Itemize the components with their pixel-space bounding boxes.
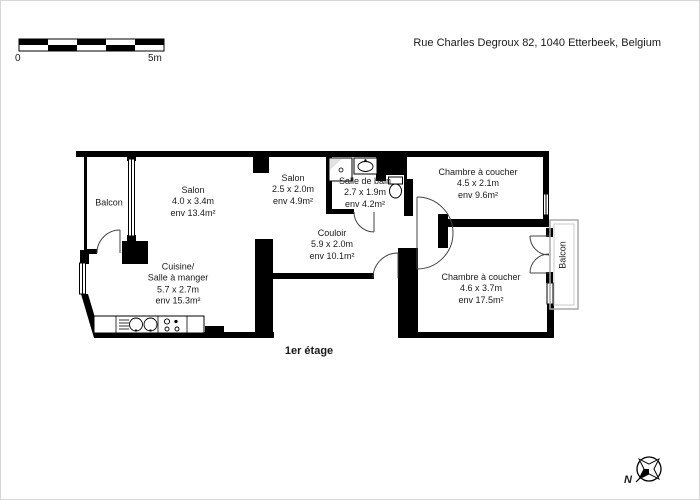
window-kitchen-left [80,263,86,294]
room-name: Salon [272,173,314,184]
room-label-salon-small: Salon 2.5 x 2.0m env 4.9m² [272,173,314,207]
compass-north-label: N [624,474,632,486]
wall-chamber-divider [448,219,549,227]
room-label-kitchen: Cuisine/ Salle à manger 5.7 x 2.7m env 1… [148,262,209,307]
room-dimensions: 5.7 x 2.7m [148,284,209,295]
room-name: Chambre à coucher [441,272,520,283]
room-name: Cuisine/ Salle à manger [148,262,209,285]
room-area: env 17.5m² [441,295,520,306]
room-area: env 4.9m² [272,196,314,207]
door-balcony-left [97,230,120,253]
wall-top [76,151,546,157]
room-area: env 13.4m² [170,208,215,219]
room-dimensions: 4.5 x 2.1m [438,178,517,189]
room-name: Balcon [557,241,568,269]
scale-bar-icon [19,39,164,51]
room-dimensions: 2.7 x 1.9m [339,187,391,198]
wall-balcony-left [84,151,87,252]
kitchen-counter [94,316,204,333]
room-label-bedroom-top: Chambre à coucher 4.5 x 2.1m env 9.6m² [438,167,517,201]
wall-center-stub [438,214,448,248]
scale-end-label: 5m [148,53,162,64]
room-name: Salle de bain [339,176,391,187]
door-french-top [530,236,549,255]
wall-bathroom-right [404,179,413,216]
room-label-balcony-right: Balcon [557,241,568,269]
sink-icon [354,158,377,174]
wall-right-top [543,151,549,195]
wall-bottom-right [401,332,554,338]
room-area: env 10.1m² [309,251,354,262]
room-name: Salon [170,185,215,196]
room-label-bedroom-bottom: Chambre à coucher 4.6 x 3.7m env 17.5m² [441,272,520,306]
room-label-living-room: Salon 4.0 x 3.4m env 13.4m² [170,185,215,219]
room-name: Balcon [95,197,123,208]
floor-label: 1er étage [259,345,359,357]
scale-start-label: 0 [15,53,21,64]
door-bathroom [354,212,374,232]
window-bedroom-top-right [544,194,549,215]
compass-rose-icon [629,449,669,489]
door-french-bottom [530,254,549,273]
room-area: env 4.2m² [339,199,391,210]
room-area: env 9.6m² [438,190,517,201]
door-entrance [373,253,398,278]
room-area: env 15.3m² [148,295,209,306]
address-text: Rue Charles Degroux 82, 1040 Etterbeek, … [413,37,661,49]
room-label-bathroom: Salle de bain 2.7 x 1.9m env 4.2m² [339,176,391,210]
room-dimensions: 5.9 x 2.0m [309,239,354,250]
room-dimensions: 4.6 x 3.7m [441,283,520,294]
window-balcony-salon [129,159,135,236]
wall-notch-top [273,273,374,279]
wall-middle [255,239,273,338]
wall-right-corner [543,215,549,226]
wall-stub-salons [253,157,269,173]
wall-left-pier [80,250,89,264]
room-dimensions: 2.5 x 2.0m [272,184,314,195]
room-label-balcony-left: Balcon [95,197,123,208]
room-name: Chambre à coucher [438,167,517,178]
floor-plan-page: Rue Charles Degroux 82, 1040 Etterbeek, … [0,0,700,500]
room-name: Couloir [309,228,354,239]
room-label-hallway: Couloir 5.9 x 2.0m env 10.1m² [309,228,354,262]
wall-kitchen-pier [205,326,224,333]
wall-bedroom-left [398,248,418,338]
room-dimensions: 4.0 x 3.4m [170,196,215,207]
